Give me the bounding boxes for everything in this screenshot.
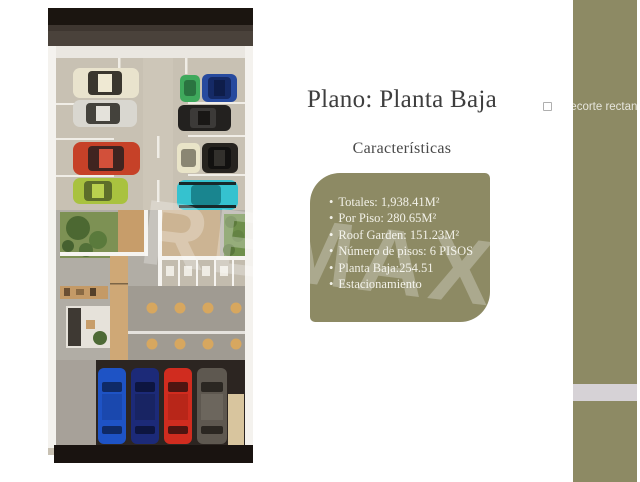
bullet-marker: • [329, 194, 333, 210]
bullet-marker: • [329, 276, 333, 292]
car-red [73, 142, 140, 175]
bullet-marker: • [329, 227, 333, 243]
accent-bar-light-band [573, 384, 637, 401]
car-garage-red [164, 368, 192, 444]
feature-item: • Estacionamiento [329, 276, 482, 292]
snip-rect-icon[interactable] [539, 98, 556, 115]
car-navy-suv [202, 74, 237, 102]
snip-hint-label: Recorte rectan [562, 101, 637, 113]
feature-item: • Por Piso: 280.65M² [329, 210, 482, 226]
car-garage-gray [197, 368, 227, 444]
courtyard [56, 210, 245, 360]
floorplan [48, 8, 253, 463]
car-cream-compact [177, 143, 200, 173]
car-garage-blue [98, 368, 126, 444]
car-garage-navy [131, 368, 159, 444]
car-cream-sedan [73, 68, 139, 98]
accent-bar [573, 0, 637, 482]
feature-text: Estacionamiento [338, 276, 421, 292]
registered-mark: ® [498, 234, 519, 263]
features-box: • Totales: 1,938.41M² • Por Piso: 280.65… [310, 173, 490, 322]
feature-item: • Totales: 1,938.41M² [329, 194, 482, 210]
slide: Plano: Planta Baja Características • Tot… [0, 0, 640, 482]
feature-item: • Planta Baja:254.51 [329, 260, 482, 276]
street [48, 8, 253, 58]
feature-text: Planta Baja:254.51 [338, 260, 433, 276]
bullet-marker: • [329, 243, 333, 259]
feature-text: Número de pisos: 6 PISOS [338, 243, 473, 259]
rectangle-glyph [543, 102, 552, 111]
features-list: • Totales: 1,938.41M² • Por Piso: 280.65… [329, 194, 482, 292]
car-lime [73, 178, 128, 204]
page-title: Plano: Planta Baja [256, 84, 548, 116]
car-cyan-sport [177, 180, 238, 210]
floor-plan-image [48, 8, 253, 463]
car-black [178, 105, 231, 131]
garage [54, 360, 253, 463]
car-silver [73, 100, 137, 127]
car-black-suv [202, 143, 238, 173]
snip-hint: Recorte rectan [539, 96, 637, 117]
feature-item: • Número de pisos: 6 PISOS [329, 243, 482, 259]
feature-item: • Roof Garden: 151.23M² [329, 227, 482, 243]
bullet-marker: • [329, 210, 333, 226]
feature-text: Por Piso: 280.65M² [338, 210, 436, 226]
feature-text: Totales: 1,938.41M² [338, 194, 439, 210]
section-subtitle: Características [256, 140, 548, 158]
bullet-marker: • [329, 260, 333, 276]
car-green-compact [180, 75, 200, 102]
feature-text: Roof Garden: 151.23M² [338, 227, 459, 243]
